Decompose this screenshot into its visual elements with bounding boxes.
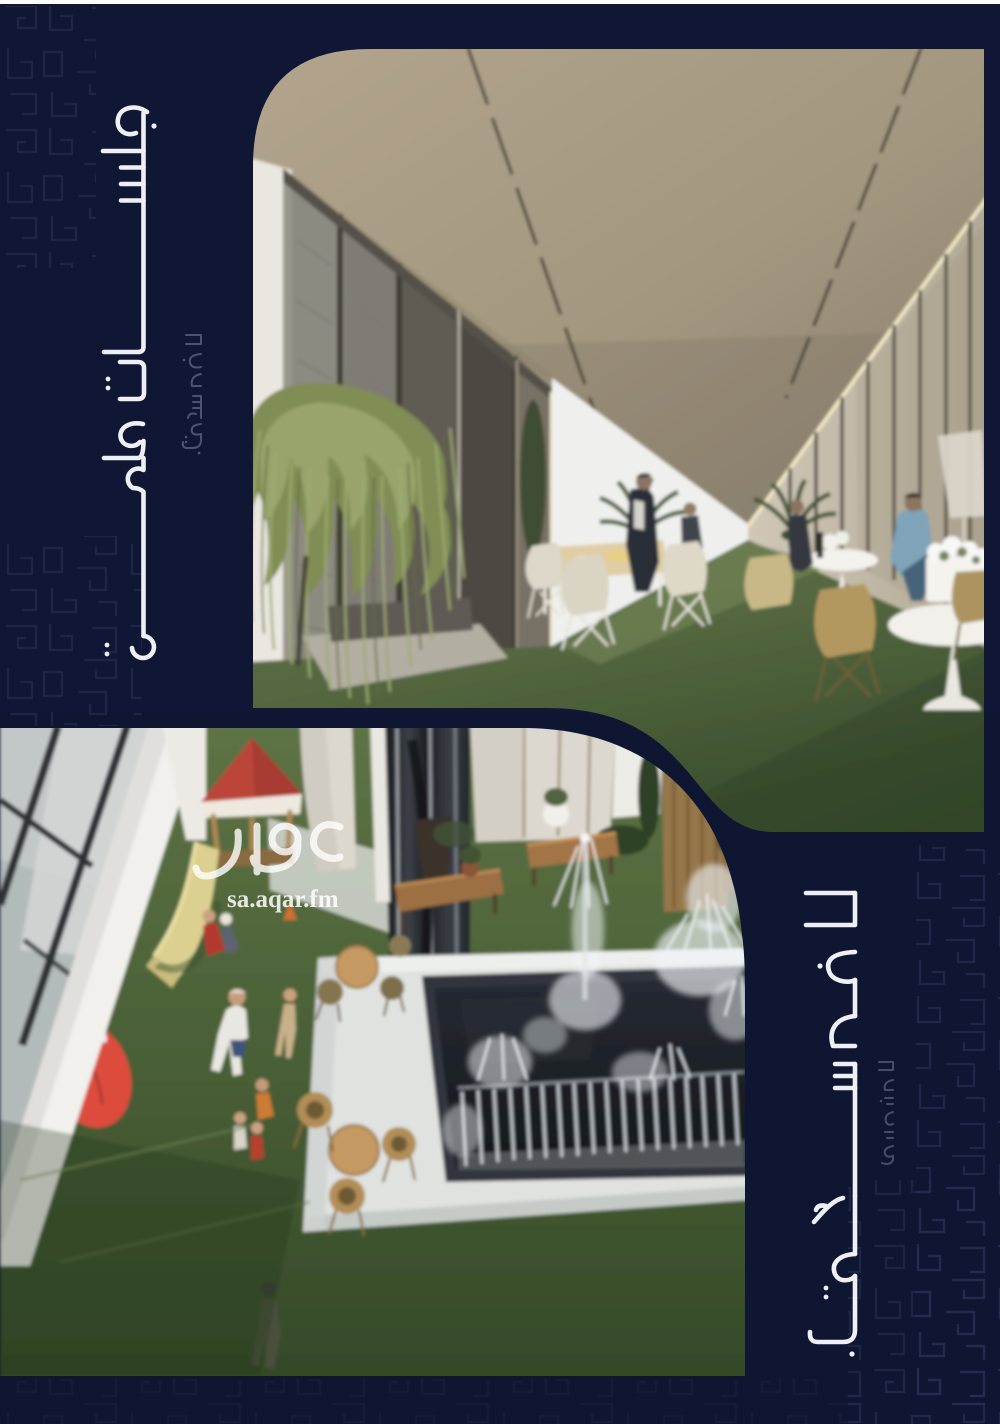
svg-text:sa.aqar.fm: sa.aqar.fm xyxy=(227,886,339,913)
